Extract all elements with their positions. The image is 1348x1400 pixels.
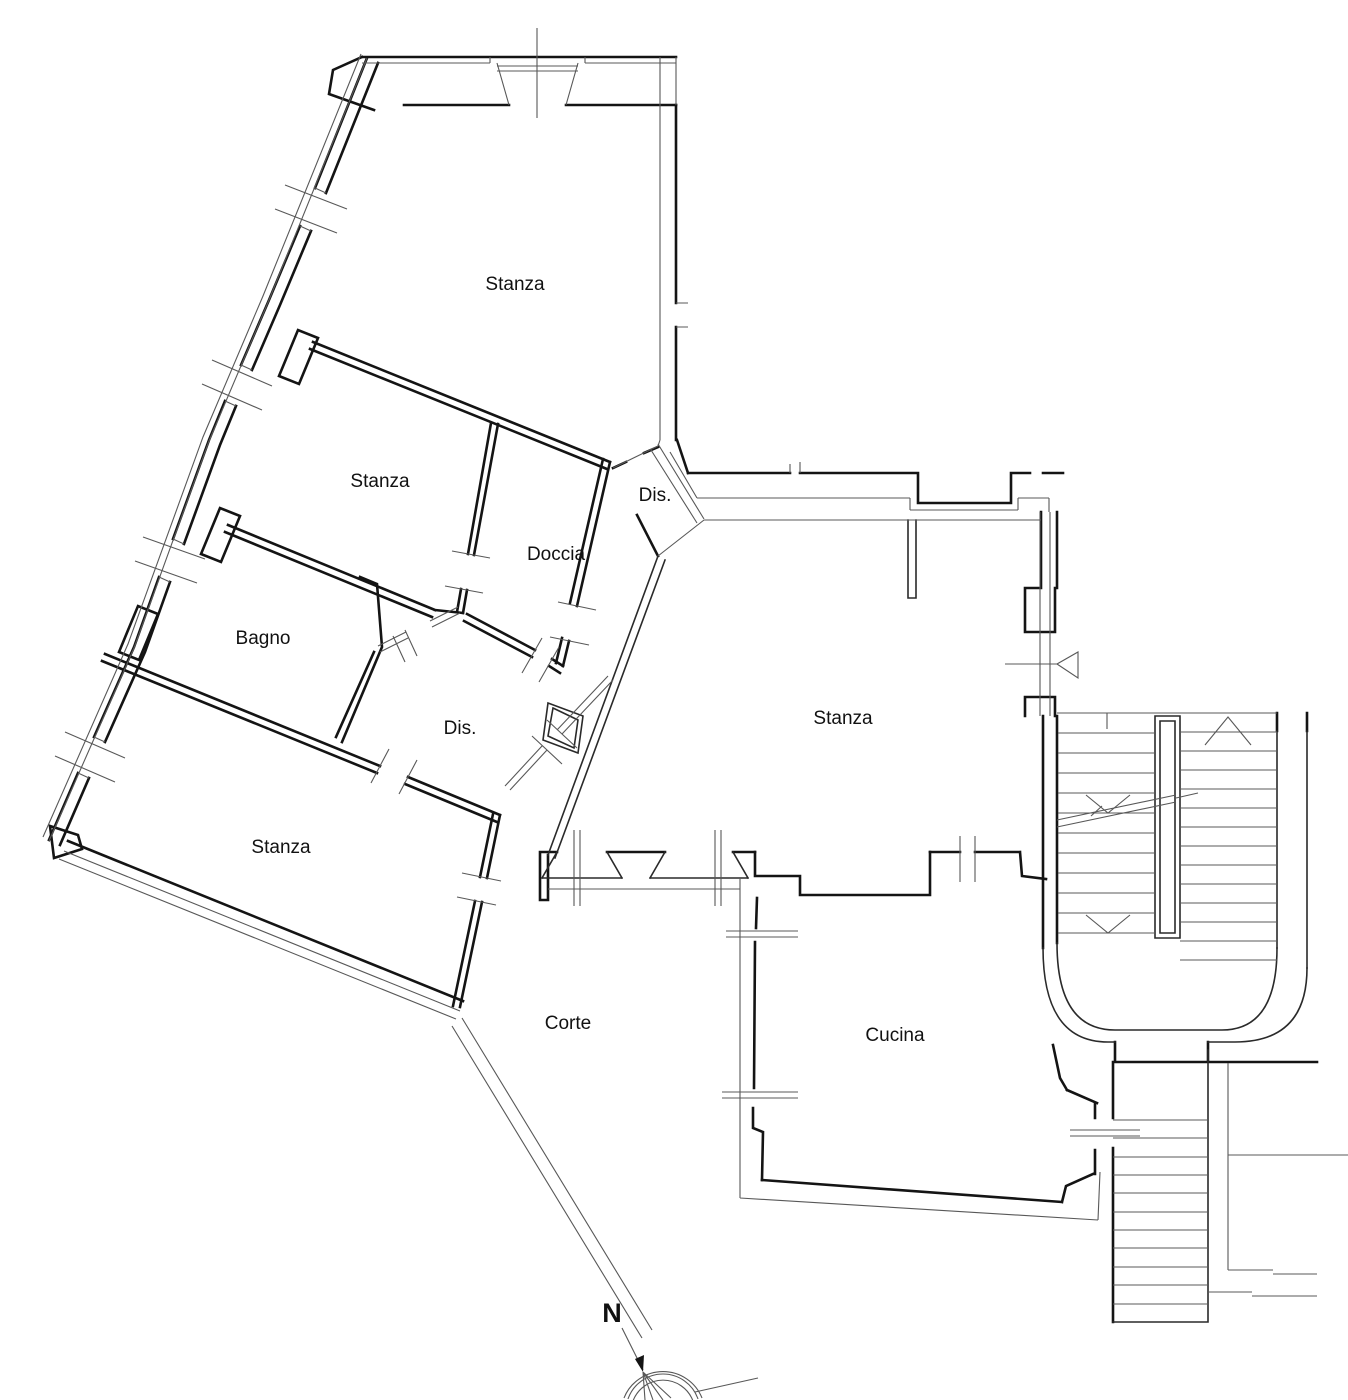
wall-stairhall-right bbox=[1277, 731, 1307, 968]
room-label-doccia: Doccia bbox=[527, 544, 586, 565]
south-outer-lines bbox=[59, 851, 460, 1019]
wall-facade-inner bbox=[60, 63, 378, 845]
compass-north-label: N bbox=[602, 1298, 622, 1328]
stair-treads-left bbox=[1058, 733, 1155, 933]
compass-rose-arcs bbox=[624, 1372, 702, 1400]
shaft-box bbox=[543, 703, 583, 753]
wall-dis-wing-nw bbox=[378, 607, 460, 662]
stairhall-bottom-inner bbox=[1057, 943, 1277, 1030]
room-label-stanza-top: Stanza bbox=[485, 274, 545, 295]
room-label-bagno: Bagno bbox=[236, 628, 291, 649]
stair-arrow-down-icons bbox=[1086, 795, 1130, 933]
cucina-thin-lines bbox=[548, 878, 1100, 1220]
entry-door-arrow-icon bbox=[1057, 652, 1078, 678]
wall-spur bbox=[908, 520, 916, 598]
wall-party-top-stanza bbox=[310, 342, 610, 469]
window-bays-corte bbox=[542, 852, 748, 878]
room-label-stanza-right: Stanza bbox=[813, 708, 873, 729]
neighbor-lines bbox=[1208, 1063, 1348, 1296]
wall-cucina-west bbox=[753, 898, 763, 1180]
room-label-dis-vestibule: Dis. bbox=[639, 485, 672, 506]
wall-cucina-east bbox=[1053, 1045, 1097, 1174]
wall-stairhall-top-ticks bbox=[1277, 713, 1307, 731]
wall-stanza-sw-east bbox=[453, 814, 500, 1007]
floor-plan-page: Stanza Stanza Doccia Bagno Dis. Stanza D… bbox=[0, 0, 1348, 1400]
right-wall-thin bbox=[658, 57, 688, 446]
wall-doccia-south bbox=[464, 614, 563, 673]
room-label-dis-wing: Dis. bbox=[444, 718, 477, 739]
wall-cucina-south bbox=[762, 1174, 1093, 1202]
wall-passage-west bbox=[505, 676, 613, 790]
door-ticks-exterior-stair bbox=[1070, 1130, 1140, 1136]
wall-stairhall-left bbox=[1043, 716, 1057, 948]
wall-cucina-north-jog bbox=[755, 852, 930, 895]
room-label-stanza-mid: Stanza bbox=[350, 471, 410, 492]
corridor-thin-lines bbox=[670, 452, 1049, 520]
exterior-stair-treads bbox=[1113, 1120, 1208, 1304]
room-label-corte: Corte bbox=[545, 1013, 591, 1034]
wall-stanza-sw-south bbox=[68, 841, 463, 1001]
wall-top-stanza-right bbox=[676, 105, 688, 473]
stair-cut-line bbox=[1057, 793, 1198, 827]
floor-plan-drawing: Stanza Stanza Doccia Bagno Dis. Stanza D… bbox=[0, 0, 1348, 1400]
stair-treads-right bbox=[1180, 732, 1277, 960]
wall-stanza-sw-top bbox=[102, 654, 500, 822]
stair-arrow-up-icon bbox=[1205, 717, 1251, 745]
door-ticks-wing bbox=[371, 551, 596, 905]
wall-passage-east bbox=[548, 556, 665, 858]
wall-porch bbox=[1115, 1042, 1317, 1062]
stairhall-bottom-outer bbox=[1043, 948, 1307, 1042]
wall-bagno-east bbox=[336, 577, 382, 742]
compass-fan-lines bbox=[643, 1372, 671, 1400]
wall-facade-pier-blocks bbox=[50, 57, 374, 858]
stair-stringer bbox=[1155, 716, 1180, 938]
wall-stanza-bagno bbox=[225, 525, 463, 617]
room-label-stanza-sw: Stanza bbox=[251, 837, 311, 858]
cucina-window-crosses bbox=[722, 931, 798, 1098]
room-label-cucina: Cucina bbox=[865, 1025, 925, 1046]
wall-exterior-stair-right bbox=[1113, 1050, 1208, 1322]
wall-stanza-doccia bbox=[457, 423, 498, 613]
compass-ne-line bbox=[695, 1378, 758, 1392]
corte-fence bbox=[452, 1018, 652, 1338]
wall-right-stanza-east bbox=[1025, 512, 1057, 716]
